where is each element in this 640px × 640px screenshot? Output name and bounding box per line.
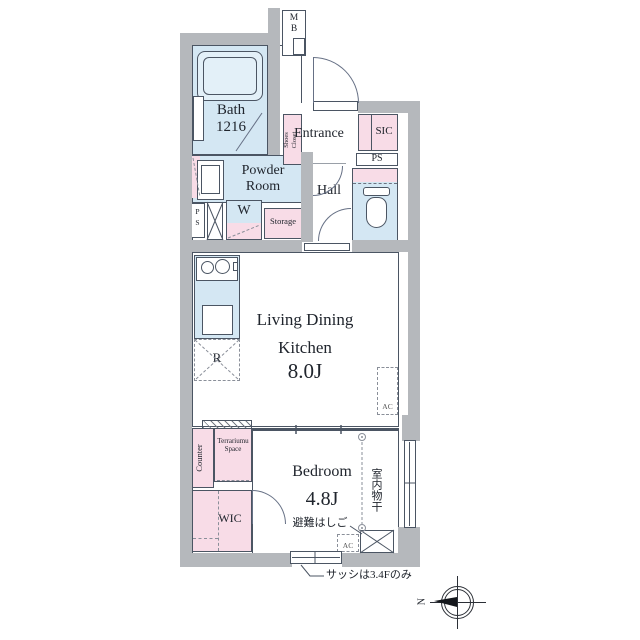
wall-bottom-right — [342, 553, 420, 567]
terrarium-label: Terrariumu Space — [214, 438, 252, 454]
hall-ldk-door — [304, 243, 350, 251]
toilet-dash-line — [353, 183, 397, 184]
wall-mb-vertical — [268, 8, 280, 155]
washer-label: W — [226, 203, 262, 219]
toilet-bowl-icon — [366, 197, 387, 228]
ldk-bedroom-divider — [252, 429, 399, 431]
terrarium-dash — [217, 480, 249, 481]
burner-icon — [215, 259, 230, 274]
terrarium-line2: Space — [214, 446, 252, 454]
wall-top-left — [180, 33, 280, 45]
ldk-label-2: Kitchen — [210, 338, 400, 357]
ps-right-label: PS — [356, 153, 398, 164]
wall-bottom-left — [180, 553, 292, 567]
mb-line1: M — [282, 13, 306, 24]
mb-label: M B — [282, 13, 306, 34]
sic-label: SIC — [370, 125, 398, 137]
entrance-label: Entrance — [288, 126, 350, 142]
wall-hall-west — [301, 152, 313, 242]
wall-right-jog — [402, 415, 420, 441]
entrance-step-line — [313, 163, 346, 164]
window-right-inner — [409, 442, 410, 526]
bath-size: 1216 — [194, 119, 268, 136]
toilet-shelf — [353, 169, 397, 182]
shaft-box — [207, 202, 223, 240]
wic-label: WIC — [208, 512, 252, 525]
compass-north-label: N — [416, 595, 427, 609]
mb-line2: B — [282, 24, 306, 35]
window-right — [404, 440, 416, 528]
ac-ldk-label: AC — [377, 403, 398, 411]
wall-mid-right — [352, 240, 408, 252]
drying-pole-label: 室内物干 — [366, 450, 382, 530]
compass-axis-v — [457, 576, 458, 629]
bathtub-inner — [203, 57, 257, 95]
ps-left-label: P S — [190, 206, 205, 229]
ldk-size-label: 8.0J — [210, 360, 400, 384]
escape-hatch-box — [360, 530, 394, 553]
powder-line2: Room — [218, 179, 308, 195]
floorplan: Bath 1216 Powder Room P S W Storage M B … — [0, 0, 640, 640]
toilet-tank-icon — [363, 187, 390, 196]
escape-hatch-label: 避難はしご — [288, 517, 352, 529]
bath-name: Bath — [194, 102, 268, 119]
meter-box-inner — [293, 38, 305, 55]
counter-label: Counter — [195, 428, 211, 488]
wall-mid-left — [180, 240, 302, 252]
storage-label: Storage — [264, 217, 302, 227]
ac-bedroom-label: AC — [337, 542, 359, 550]
wall-right-upper — [408, 101, 420, 433]
wall-left — [180, 33, 192, 567]
stove-panel — [233, 262, 238, 271]
window-bottom-inner — [292, 557, 340, 558]
bedroom-label: Bedroom — [262, 463, 382, 481]
wic-dash-h — [193, 538, 218, 539]
burner-icon — [201, 261, 214, 274]
ps-left-line2: S — [190, 217, 205, 228]
compass-needle — [434, 597, 457, 607]
sash-note: サッシは3.4Fのみ — [326, 569, 422, 581]
entrance-door-arc — [313, 57, 359, 103]
ldk-label-1: Living Dining — [210, 310, 400, 329]
ps-left-line1: P — [190, 206, 205, 217]
washer-pan — [227, 223, 261, 239]
bath-label: Bath 1216 — [194, 102, 268, 136]
